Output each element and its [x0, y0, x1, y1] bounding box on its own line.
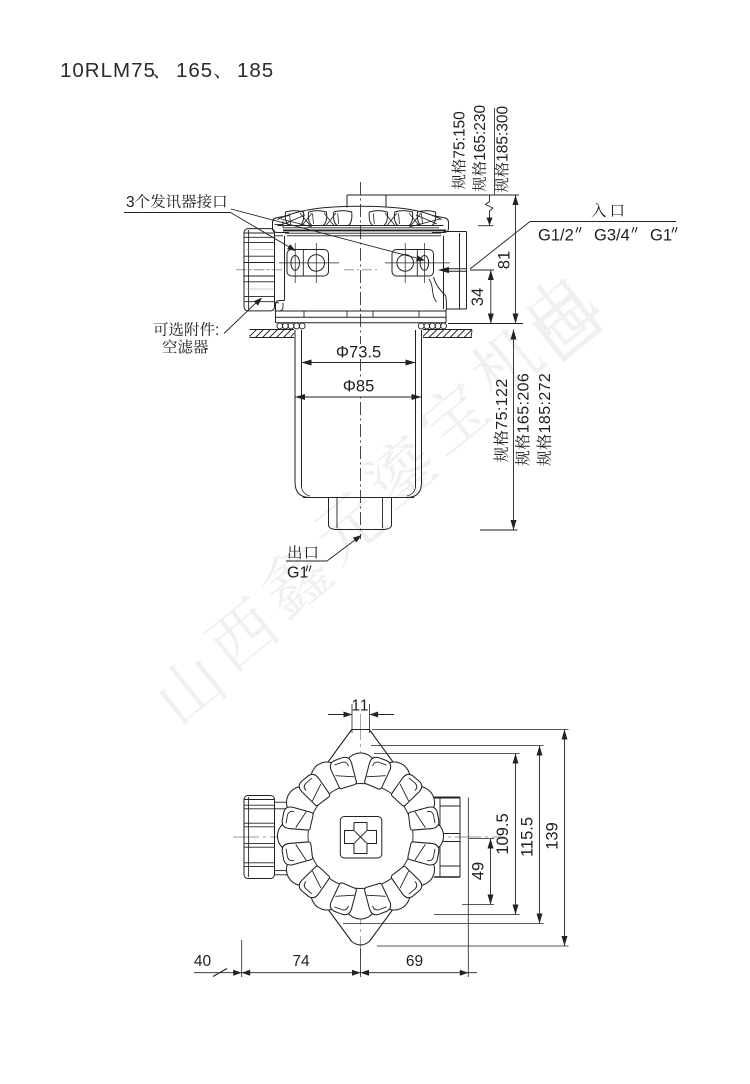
svg-text:10RLM75: 10RLM75: [60, 59, 156, 82]
svg-text:75:122: 75:122: [494, 378, 511, 429]
svg-text:165:206: 165:206: [516, 373, 533, 434]
svg-text:11: 11: [351, 698, 369, 715]
svg-text:139: 139: [544, 822, 562, 850]
svg-text:115.5: 115.5: [519, 817, 537, 857]
svg-text:185: 185: [237, 59, 274, 82]
svg-text:185:272: 185:272: [537, 373, 554, 434]
svg-text:81: 81: [496, 251, 514, 269]
svg-text:Φ73.5: Φ73.5: [336, 344, 381, 362]
svg-text:34: 34: [469, 288, 487, 306]
svg-text:69: 69: [406, 953, 423, 970]
svg-text:109.5: 109.5: [494, 813, 512, 854]
svg-text:G3/4: G3/4: [594, 227, 630, 245]
svg-text:G1: G1: [287, 565, 308, 582]
svg-text:185:300: 185:300: [495, 105, 512, 161]
svg-text:G1/2: G1/2: [538, 227, 574, 245]
svg-text:3: 3: [126, 194, 135, 211]
svg-text:40: 40: [194, 953, 212, 970]
svg-text::: :: [215, 322, 219, 339]
svg-text:74: 74: [292, 953, 310, 970]
svg-text:G1: G1: [650, 227, 672, 245]
svg-text:165:230: 165:230: [472, 104, 489, 160]
svg-text:49: 49: [470, 862, 488, 880]
svg-text:75:150: 75:150: [452, 111, 469, 159]
svg-text:Φ85: Φ85: [343, 378, 375, 396]
svg-text:165: 165: [176, 59, 213, 82]
